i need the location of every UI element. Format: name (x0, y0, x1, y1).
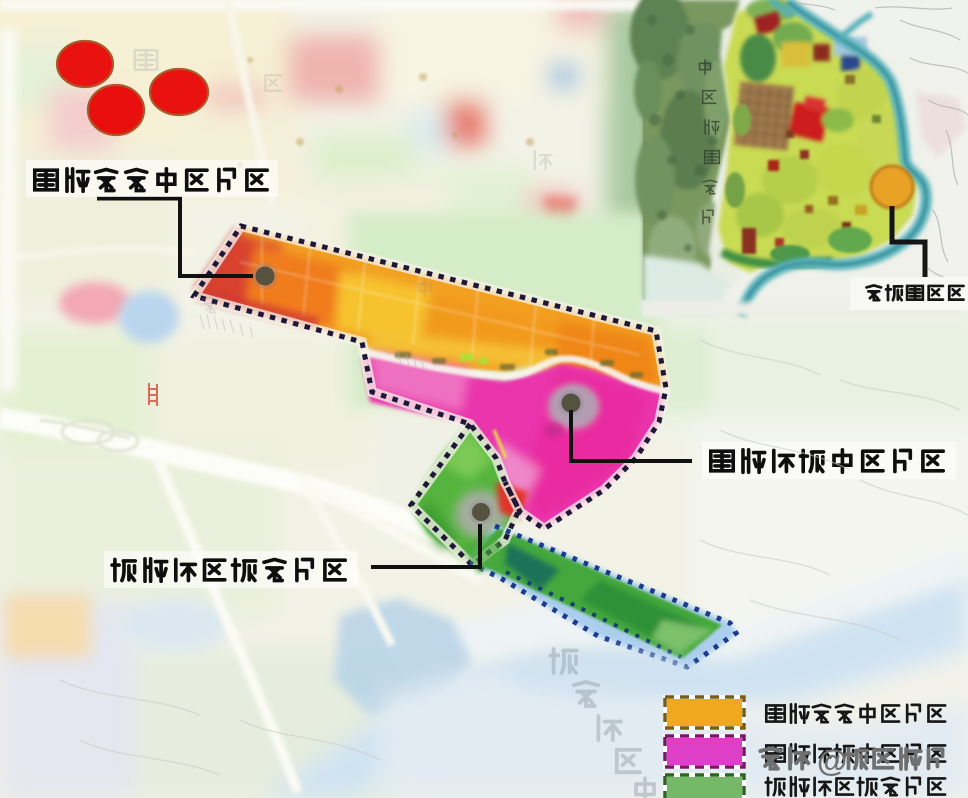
svg-text:@: @ (817, 743, 847, 778)
